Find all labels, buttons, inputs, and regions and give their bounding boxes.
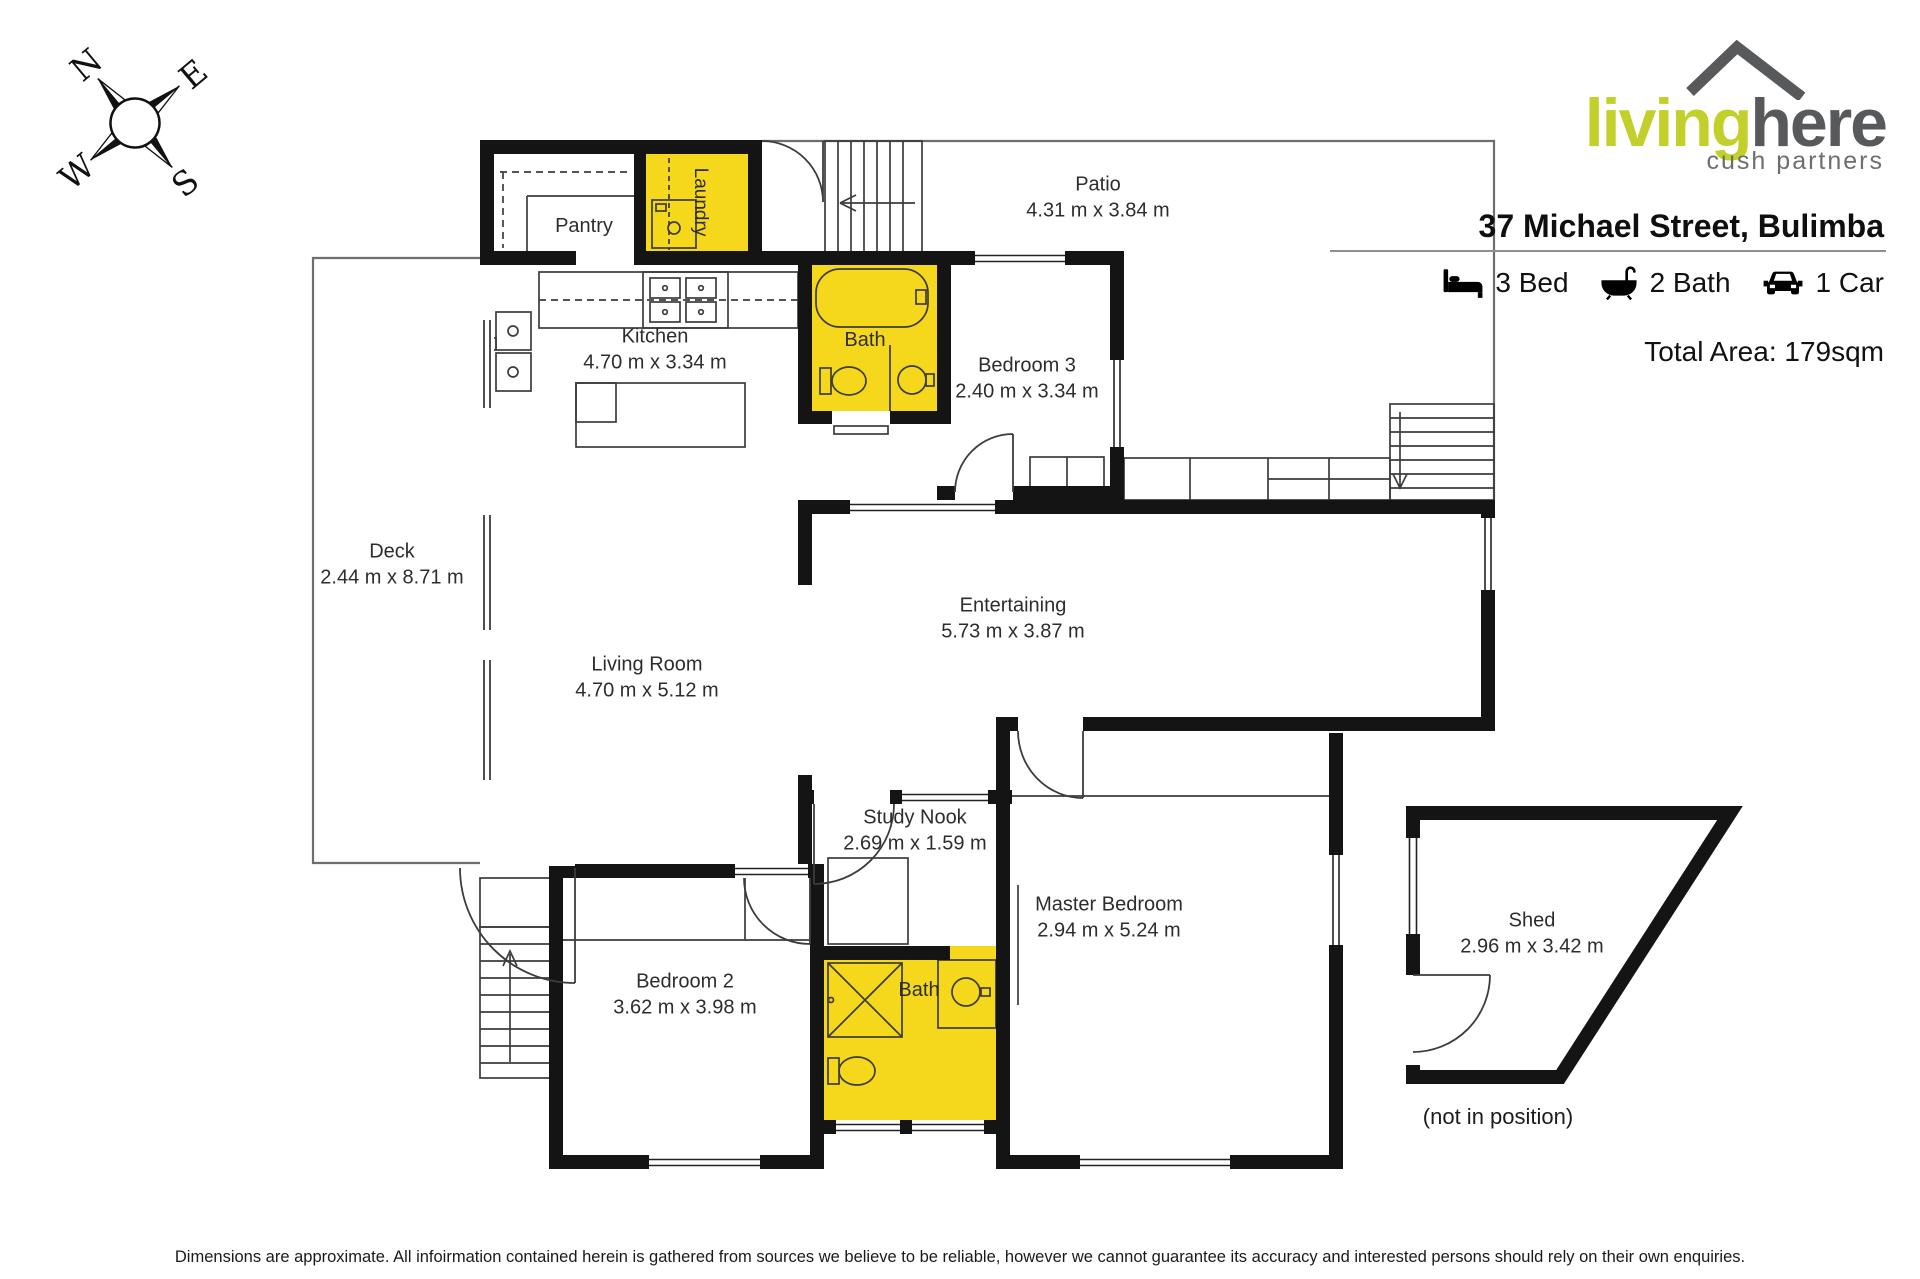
- room-dims: 2.94 m x 5.24 m: [1035, 918, 1183, 944]
- room-name: Bath: [844, 328, 885, 354]
- stairs-entry: [762, 141, 922, 261]
- stairs-lower: [480, 878, 557, 1078]
- compass-west-label: W: [51, 146, 102, 198]
- compass-east-label: E: [171, 52, 215, 97]
- car-icon: [1761, 267, 1805, 299]
- room-label-kitchen: Kitchen 4.70 m x 3.34 m: [583, 324, 726, 375]
- room-label-shed: Shed 2.96 m x 3.42 m: [1460, 908, 1603, 959]
- master-door: [1018, 731, 1083, 798]
- room-dims: 2.69 m x 1.59 m: [843, 831, 986, 857]
- room-name: Bath: [898, 978, 939, 1004]
- study-nook-desk: [828, 858, 908, 944]
- feature-cars-label: 1 Car: [1816, 267, 1884, 299]
- room-label-deck: Deck 2.44 m x 8.71 m: [320, 539, 463, 590]
- room-name: Pantry: [555, 214, 613, 240]
- room-dims: 4.31 m x 3.84 m: [1026, 198, 1169, 224]
- feature-cars: 1 Car: [1761, 267, 1884, 299]
- address-divider: [1330, 250, 1886, 252]
- kitchen-counter: [539, 272, 798, 328]
- room-dims: 4.70 m x 5.12 m: [575, 678, 718, 704]
- room-name: Study Nook: [843, 805, 986, 831]
- bed-icon: [1442, 267, 1484, 299]
- stairs-patio: [1390, 404, 1494, 500]
- disclaimer-text: Dimensions are approximate. All infoirma…: [0, 1248, 1920, 1267]
- room-name: Entertaining: [941, 593, 1084, 619]
- kitchen-sink-icon: [488, 312, 531, 391]
- room-label-study-nook: Study Nook 2.69 m x 1.59 m: [843, 805, 986, 856]
- bedroom2-door: [744, 878, 810, 944]
- feature-baths-label: 2 Bath: [1650, 267, 1731, 299]
- bedroom3-door: [955, 434, 1013, 492]
- room-label-master-bedroom: Master Bedroom 2.94 m x 5.24 m: [1035, 892, 1183, 943]
- room-label-bedroom-3: Bedroom 3 2.40 m x 3.34 m: [955, 353, 1098, 404]
- storage-cells: [1124, 458, 1390, 500]
- room-name: Living Room: [575, 652, 718, 678]
- total-area: Total Area: 179sqm: [1644, 336, 1884, 368]
- entry-door: [762, 141, 823, 202]
- room-dims: 5.73 m x 3.87 m: [941, 619, 1084, 645]
- feature-baths: 2 Bath: [1599, 266, 1731, 300]
- feature-beds-label: 3 Bed: [1495, 267, 1568, 299]
- room-name: Deck: [320, 539, 463, 565]
- floor-plan-page: N E S W: [0, 0, 1920, 1279]
- stairs-patio-arrow: [1393, 412, 1407, 488]
- shed-position-note: (not in position): [1423, 1104, 1573, 1130]
- room-label-bath-1: Bath: [844, 328, 885, 354]
- room-dims: 2.40 m x 3.34 m: [955, 379, 1098, 405]
- room-label-entertaining: Entertaining 5.73 m x 3.87 m: [941, 593, 1084, 644]
- room-label-laundry: Laundry: [688, 168, 712, 237]
- compass-south-label: S: [164, 161, 206, 205]
- feature-beds: 3 Bed: [1442, 267, 1568, 299]
- bath-icon: [1599, 266, 1639, 300]
- room-name: Master Bedroom: [1035, 892, 1183, 918]
- room-dims: 3.62 m x 3.98 m: [613, 995, 756, 1021]
- room-label-bath-2: Bath: [898, 978, 939, 1004]
- room-name: Shed: [1460, 908, 1603, 934]
- compass-rose-icon: N E S W: [2, 0, 265, 257]
- room-name: Bedroom 3: [955, 353, 1098, 379]
- room-name: Laundry: [688, 168, 712, 237]
- property-address: 37 Michael Street, Bulimba: [1479, 208, 1884, 245]
- feature-summary: 3 Bed 2 Bath 1 Car: [1442, 266, 1884, 300]
- room-dims: 2.96 m x 3.42 m: [1460, 934, 1603, 960]
- room-name: Kitchen: [583, 324, 726, 350]
- room-name: Bedroom 2: [613, 969, 756, 995]
- room-dims: 2.44 m x 8.71 m: [320, 565, 463, 591]
- room-label-bedroom-2: Bedroom 2 3.62 m x 3.98 m: [613, 969, 756, 1020]
- room-label-patio: Patio 4.31 m x 3.84 m: [1026, 172, 1169, 223]
- kitchen-island: [576, 383, 745, 447]
- room-name: Patio: [1026, 172, 1169, 198]
- room-label-living-room: Living Room 4.70 m x 5.12 m: [575, 652, 718, 703]
- room-label-pantry: Pantry: [555, 214, 613, 240]
- room-dims: 4.70 m x 3.34 m: [583, 350, 726, 376]
- brand-tagline: cush partners: [1707, 147, 1884, 176]
- bedroom2-wardrobe: [563, 878, 810, 940]
